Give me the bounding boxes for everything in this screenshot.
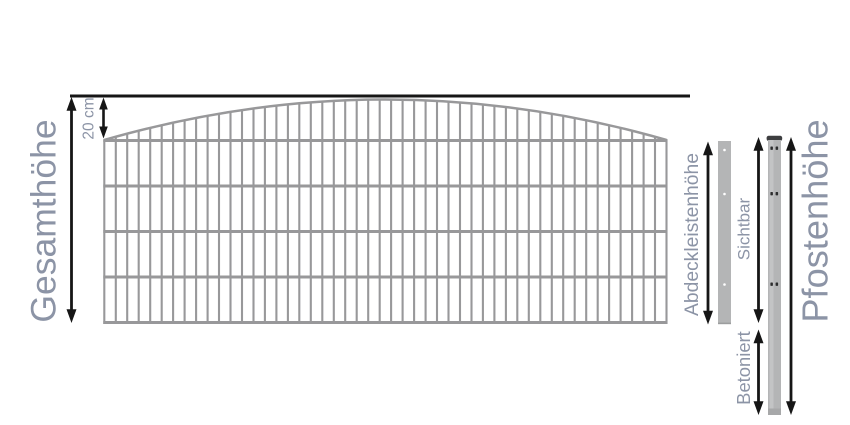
svg-text:Abdeckleistenhöhe: Abdeckleistenhöhe [682, 153, 703, 316]
svg-text:Betoniert: Betoniert [733, 331, 754, 405]
svg-text:20 cm: 20 cm [81, 97, 98, 139]
svg-text:Pfostenhöhe: Pfostenhöhe [795, 119, 836, 322]
svg-text:Gesamthöhe: Gesamthöhe [24, 119, 64, 322]
svg-text:Sichtbar: Sichtbar [735, 197, 754, 260]
